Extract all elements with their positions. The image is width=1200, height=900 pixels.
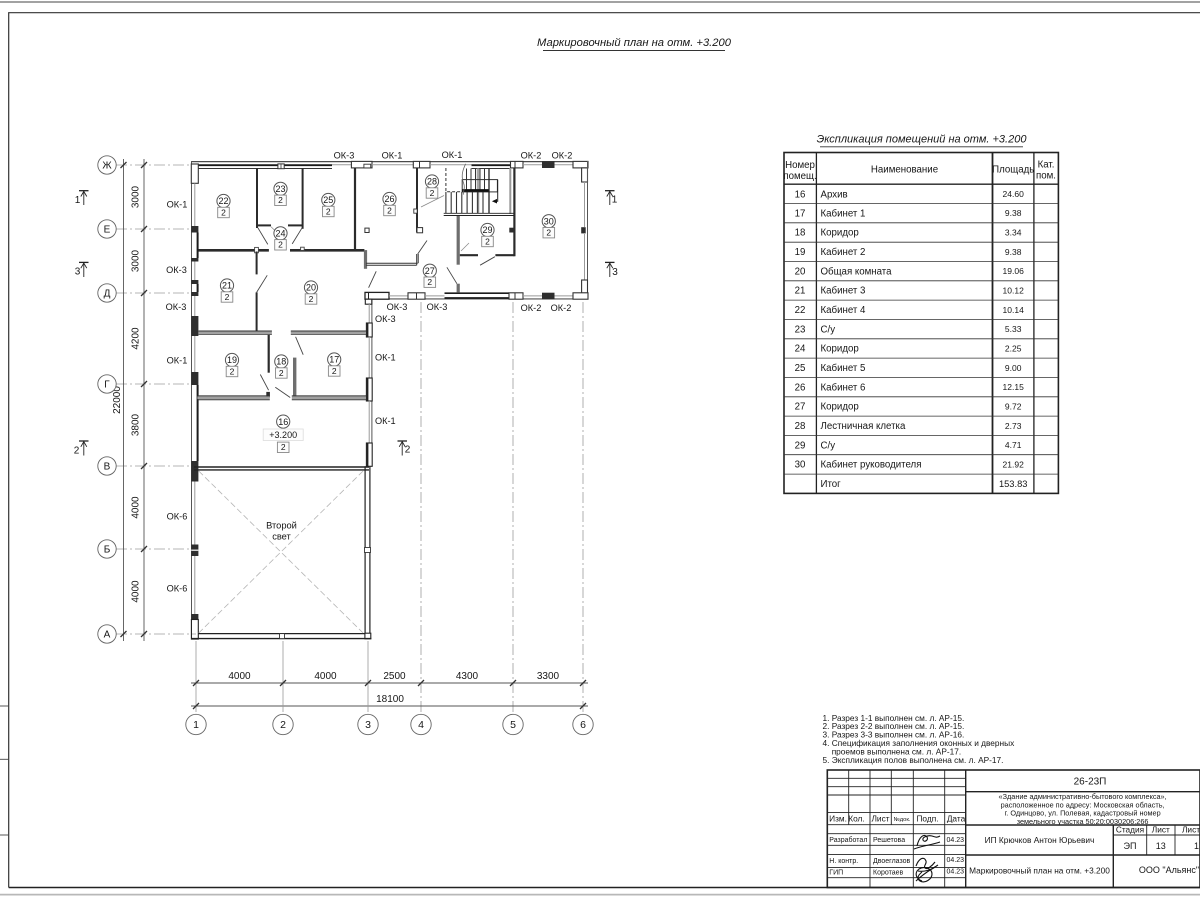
svg-text:18100: 18100 — [376, 694, 404, 705]
svg-text:2: 2 — [405, 445, 411, 456]
svg-text:В: В — [104, 462, 111, 473]
svg-text:ОК-2: ОК-2 — [521, 150, 542, 160]
svg-text:Лист: Лист — [1152, 825, 1170, 835]
svg-text:24: 24 — [275, 229, 285, 239]
svg-text:12.15: 12.15 — [1003, 382, 1025, 392]
svg-text:Коридор: Коридор — [821, 344, 859, 355]
svg-text:2: 2 — [485, 236, 490, 246]
svg-text:Кабинет 6: Кабинет 6 — [821, 382, 866, 393]
svg-text:Номер: Номер — [785, 160, 815, 171]
svg-text:29: 29 — [795, 440, 806, 451]
svg-text:20: 20 — [795, 266, 806, 277]
svg-text:5: 5 — [510, 719, 516, 731]
svg-text:ОК-3: ОК-3 — [427, 302, 448, 312]
svg-text:3800: 3800 — [131, 413, 142, 436]
svg-text:Н. контр.: Н. контр. — [829, 858, 858, 865]
svg-text:20: 20 — [306, 283, 316, 293]
svg-text:2: 2 — [332, 366, 337, 376]
svg-text:3: 3 — [75, 267, 81, 278]
svg-text:№док.: №док. — [894, 817, 911, 823]
svg-text:17: 17 — [329, 355, 339, 365]
svg-text:4200: 4200 — [131, 327, 142, 350]
svg-text:28: 28 — [427, 177, 437, 187]
svg-text:2: 2 — [387, 205, 392, 215]
svg-text:+3.200: +3.200 — [269, 430, 297, 440]
svg-text:Архив: Архив — [821, 190, 848, 201]
svg-text:ОК-6: ОК-6 — [167, 511, 188, 521]
svg-text:ОК-1: ОК-1 — [442, 150, 463, 160]
svg-text:ОК-1: ОК-1 — [167, 199, 188, 209]
svg-text:2: 2 — [221, 207, 226, 217]
svg-text:6: 6 — [580, 719, 586, 731]
svg-text:19: 19 — [795, 247, 806, 258]
svg-text:1: 1 — [75, 195, 81, 206]
svg-text:30: 30 — [544, 216, 554, 226]
svg-text:ОК-1: ОК-1 — [167, 355, 188, 365]
svg-text:4000: 4000 — [314, 671, 337, 682]
svg-text:Изм.: Изм. — [829, 814, 847, 824]
svg-text:2: 2 — [280, 719, 286, 731]
svg-text:153.83: 153.83 — [999, 479, 1027, 489]
svg-text:16: 16 — [278, 417, 288, 427]
svg-text:Общая комната: Общая комната — [821, 266, 893, 277]
svg-text:2500: 2500 — [383, 671, 406, 682]
svg-text:27: 27 — [795, 402, 806, 413]
svg-text:4.71: 4.71 — [1005, 440, 1022, 450]
svg-text:29: 29 — [482, 225, 492, 235]
svg-text:3: 3 — [612, 267, 618, 278]
svg-text:Кат.: Кат. — [1038, 160, 1055, 171]
svg-text:26-23П: 26-23П — [1074, 777, 1107, 788]
svg-text:ОК-3: ОК-3 — [375, 314, 396, 324]
svg-text:4000: 4000 — [131, 580, 142, 603]
svg-text:21.92: 21.92 — [1003, 459, 1025, 469]
svg-text:Коротаев: Коротаев — [873, 869, 904, 876]
svg-text:2.73: 2.73 — [1005, 421, 1022, 431]
svg-text:Кабинет 1: Кабинет 1 — [821, 208, 866, 219]
svg-text:3000: 3000 — [131, 249, 142, 272]
svg-text:28: 28 — [795, 421, 806, 432]
svg-text:Е: Е — [104, 225, 111, 236]
svg-text:Кабинет руководителя: Кабинет руководителя — [821, 460, 922, 471]
svg-text:Маркировочный план на отм. +3.: Маркировочный план на отм. +3.200 — [537, 37, 732, 49]
svg-text:2: 2 — [427, 277, 432, 287]
svg-text:2: 2 — [546, 228, 551, 238]
svg-text:2: 2 — [326, 206, 331, 216]
svg-text:Итог: Итог — [821, 479, 842, 490]
svg-text:5. Экспликация полов выполнена: 5. Экспликация полов выполнена см. л. АР… — [823, 755, 1004, 765]
svg-text:23: 23 — [795, 324, 806, 335]
svg-text:10.12: 10.12 — [1003, 286, 1025, 296]
svg-text:Г: Г — [104, 380, 110, 391]
svg-text:04.23: 04.23 — [947, 857, 965, 864]
svg-text:ОК-1: ОК-1 — [382, 150, 403, 160]
svg-text:Д: Д — [104, 289, 111, 300]
svg-text:4: 4 — [418, 719, 424, 731]
svg-text:Площадь: Площадь — [992, 165, 1034, 176]
svg-text:Кабинет 3: Кабинет 3 — [821, 286, 866, 297]
svg-text:23: 23 — [275, 184, 285, 194]
svg-text:2: 2 — [309, 294, 314, 304]
svg-text:2: 2 — [230, 366, 235, 376]
svg-text:Коридор: Коридор — [821, 228, 859, 239]
svg-text:Лестничная клетка: Лестничная клетка — [821, 421, 906, 432]
svg-text:22: 22 — [218, 196, 228, 206]
svg-text:Лист: Лист — [1182, 825, 1200, 835]
svg-text:Наименование: Наименование — [871, 165, 938, 176]
svg-text:4000: 4000 — [228, 671, 251, 682]
svg-text:2: 2 — [225, 292, 230, 302]
svg-text:3000: 3000 — [131, 185, 142, 208]
svg-text:4000: 4000 — [131, 496, 142, 519]
svg-text:Экспликация помещений на отм.: Экспликация помещений на отм. +3.200 — [817, 134, 1028, 146]
svg-text:ОК-2: ОК-2 — [552, 150, 573, 160]
svg-text:Двоеглазов: Двоеглазов — [873, 858, 910, 865]
svg-text:ОК-3: ОК-3 — [387, 302, 408, 312]
svg-text:свет: свет — [272, 532, 291, 542]
svg-text:04.23: 04.23 — [947, 837, 965, 844]
svg-text:ГИП: ГИП — [829, 869, 843, 876]
svg-text:9.72: 9.72 — [1005, 401, 1022, 411]
svg-text:Кабинет 4: Кабинет 4 — [821, 305, 867, 316]
svg-text:2: 2 — [278, 240, 283, 250]
svg-text:1: 1 — [193, 719, 199, 731]
svg-text:2.25: 2.25 — [1005, 344, 1022, 354]
svg-text:Второй: Второй — [266, 521, 297, 531]
svg-text:2: 2 — [430, 188, 435, 198]
svg-text:2: 2 — [278, 195, 283, 205]
svg-text:21: 21 — [222, 281, 232, 291]
svg-text:пом.: пом. — [1036, 171, 1056, 182]
svg-text:9.38: 9.38 — [1005, 247, 1022, 257]
svg-text:С/у: С/у — [821, 440, 836, 451]
svg-text:22: 22 — [795, 305, 806, 316]
svg-text:ООО "Альянс": ООО "Альянс" — [1139, 865, 1199, 875]
svg-text:Б: Б — [104, 545, 111, 556]
svg-text:С/у: С/у — [821, 324, 836, 335]
svg-text:4300: 4300 — [456, 671, 479, 682]
svg-text:3: 3 — [365, 719, 371, 731]
svg-text:9.00: 9.00 — [1005, 363, 1022, 373]
svg-text:3.34: 3.34 — [1005, 228, 1022, 238]
svg-text:ЭП: ЭП — [1124, 841, 1137, 851]
svg-text:Разработал: Разработал — [829, 836, 867, 844]
svg-text:ОК-2: ОК-2 — [551, 303, 572, 313]
svg-text:2: 2 — [281, 442, 286, 452]
svg-text:Подп.: Подп. — [916, 814, 938, 824]
svg-text:24: 24 — [795, 344, 806, 355]
svg-text:ОК-3: ОК-3 — [166, 302, 187, 312]
svg-text:19.06: 19.06 — [1003, 266, 1025, 276]
svg-text:18: 18 — [276, 357, 286, 367]
svg-text:ОК-6: ОК-6 — [167, 584, 188, 594]
svg-text:25: 25 — [795, 363, 806, 374]
svg-text:2: 2 — [279, 368, 284, 378]
svg-text:ОК-3: ОК-3 — [166, 265, 187, 275]
svg-text:Дата: Дата — [947, 814, 966, 824]
svg-text:16: 16 — [795, 190, 806, 201]
svg-text:17: 17 — [1194, 841, 1200, 851]
svg-text:помещ.: помещ. — [783, 171, 816, 182]
svg-text:25: 25 — [323, 195, 333, 205]
svg-text:Лист: Лист — [871, 814, 889, 824]
svg-text:А: А — [104, 630, 111, 641]
svg-text:ИП Крючков Антон Юрьевич: ИП Крючков Антон Юрьевич — [985, 835, 1095, 845]
svg-text:24.60: 24.60 — [1003, 189, 1025, 199]
svg-text:13: 13 — [1156, 841, 1166, 851]
svg-text:3300: 3300 — [537, 671, 560, 682]
svg-text:04.23: 04.23 — [947, 869, 965, 876]
svg-text:Кабинет 5: Кабинет 5 — [821, 363, 866, 374]
svg-text:30: 30 — [795, 460, 806, 471]
svg-text:5.33: 5.33 — [1005, 324, 1022, 334]
svg-text:2: 2 — [74, 446, 80, 457]
svg-text:Решетова: Решетова — [873, 837, 905, 844]
svg-text:Стадия: Стадия — [1116, 825, 1144, 835]
svg-text:Кабинет 2: Кабинет 2 — [821, 247, 866, 258]
svg-text:21: 21 — [795, 286, 806, 297]
svg-text:18: 18 — [795, 228, 806, 239]
svg-text:26: 26 — [384, 194, 394, 204]
svg-text:Кол.: Кол. — [848, 814, 864, 824]
svg-text:ОК-2: ОК-2 — [521, 303, 542, 313]
svg-text:Маркировочный план на отм. +3.: Маркировочный план на отм. +3.200 — [969, 866, 1110, 876]
svg-text:ОК-1: ОК-1 — [375, 352, 396, 362]
svg-text:Коридор: Коридор — [821, 402, 859, 413]
svg-text:10.14: 10.14 — [1003, 305, 1025, 315]
svg-text:1: 1 — [612, 195, 618, 206]
svg-text:9.38: 9.38 — [1005, 208, 1022, 218]
svg-text:27: 27 — [425, 266, 435, 276]
svg-text:ОК-1: ОК-1 — [375, 416, 396, 426]
svg-text:ОК-3: ОК-3 — [334, 150, 355, 160]
svg-text:26: 26 — [795, 382, 806, 393]
svg-text:19: 19 — [227, 355, 237, 365]
svg-text:Ж: Ж — [102, 161, 112, 172]
svg-text:17: 17 — [795, 208, 806, 219]
